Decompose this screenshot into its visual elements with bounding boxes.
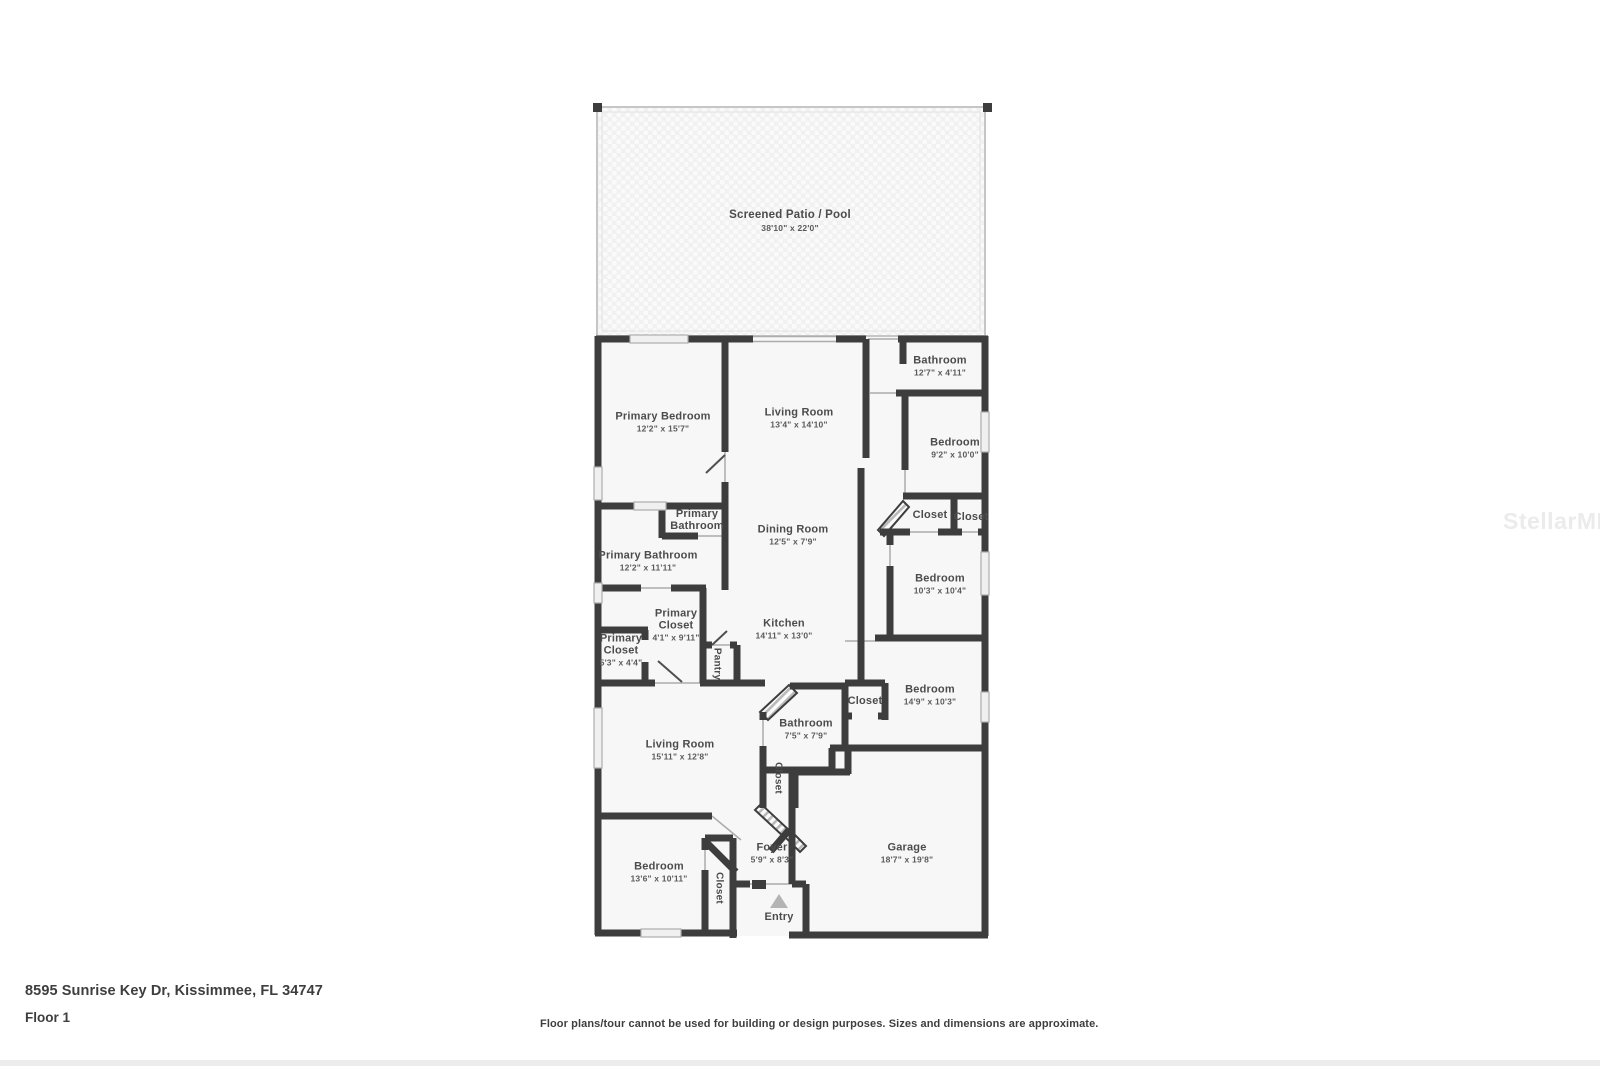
room-label-foyer: Foyer 5'9" x 8'3"	[751, 841, 794, 864]
room-label-bedroom-east: Bedroom 10'3" x 10'4"	[914, 572, 967, 595]
stellar-mls-watermark: StellarMLS	[1503, 508, 1600, 535]
room-label-primary-closet-2: Primary Closet 5'3" x 4'4"	[589, 632, 653, 667]
entry-door	[752, 880, 766, 889]
room-label-bathroom-upper: Bathroom 12'7" x 4'11"	[913, 354, 967, 377]
floor-plan-page: Screened Patio / Pool 38'10" x 22'0" Pri…	[0, 0, 1600, 1066]
property-address: 8595 Sunrise Key Dr, Kissimmee, FL 34747	[25, 983, 323, 999]
room-label-entry: Entry	[764, 911, 793, 923]
bottom-divider	[0, 1060, 1600, 1066]
room-label-closet-ne-1: Closet	[913, 509, 948, 521]
room-label-dining-room: Dining Room 12'5" x 7'9"	[758, 523, 829, 546]
room-label-primary-bathroom: Primary Bathroom 12'2" x 11'11"	[598, 549, 697, 572]
room-label-bathroom-center: Bathroom 7'5" x 7'9"	[779, 717, 833, 740]
room-label-closet-bedroom-sw: Closet	[714, 872, 725, 904]
room-label-closet-bath: Closet	[848, 695, 883, 707]
room-label-kitchen: Kitchen 14'11" x 13'0"	[756, 617, 813, 640]
room-label-primary-bathroom-wc: Primary Bathroom	[665, 508, 729, 532]
room-label-closet-ne-2: Closet	[954, 511, 989, 523]
room-label-bedroom-se: Bedroom 14'9" x 10'3"	[904, 683, 957, 706]
room-label-closet-hall: Closet	[773, 762, 784, 794]
room-label-living-room-lower: Living Room 15'11" x 12'8"	[646, 738, 715, 761]
room-label-primary-bedroom: Primary Bedroom 12'2" x 15'7"	[615, 410, 710, 433]
room-label-pantry: Pantry	[712, 648, 723, 680]
room-label-garage: Garage 18'7" x 19'8"	[881, 841, 934, 864]
room-label-bedroom-sw: Bedroom 13'6" x 10'11"	[631, 860, 688, 883]
room-label-bedroom-ne: Bedroom 9'2" x 10'0"	[930, 436, 980, 459]
room-label-living-room-upper: Living Room 13'4" x 14'10"	[765, 406, 834, 429]
floor-number-label: Floor 1	[25, 1010, 70, 1025]
room-label-screened-patio-pool: Screened Patio / Pool 38'10" x 22'0"	[729, 209, 851, 233]
room-label-primary-closet-1: Primary Closet 4'1" x 9'11"	[644, 607, 708, 642]
disclaimer-text: Floor plans/tour cannot be used for buil…	[540, 1018, 1098, 1030]
